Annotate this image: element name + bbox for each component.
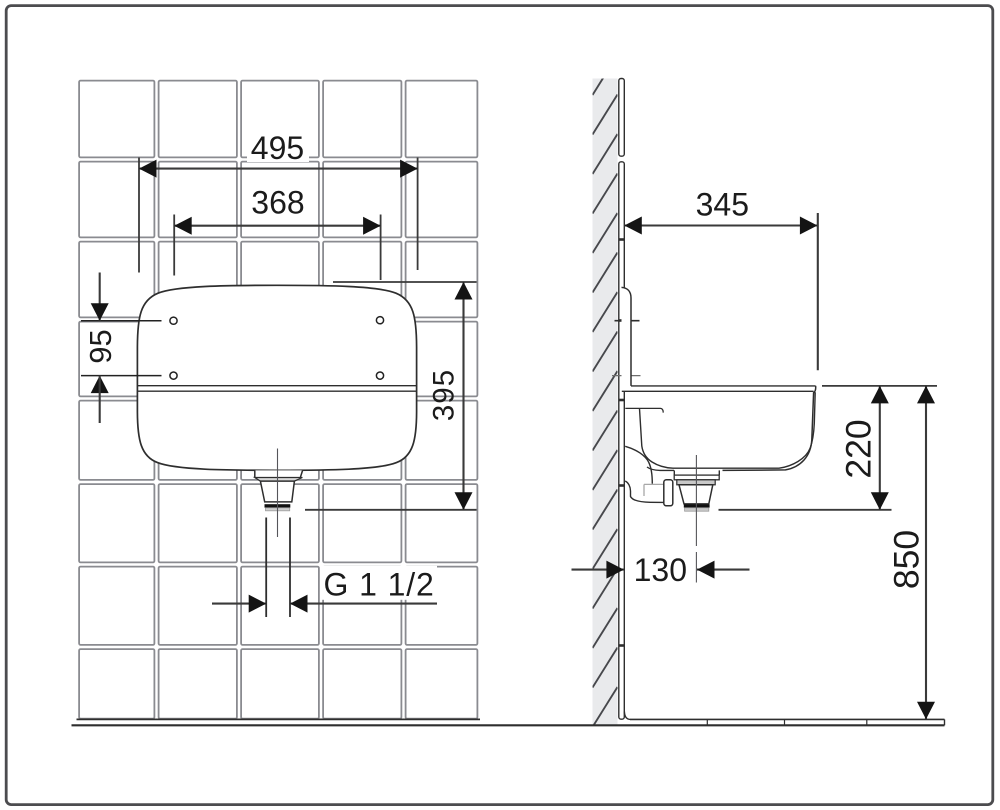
svg-text:495: 495: [251, 130, 304, 166]
svg-text:130: 130: [634, 552, 687, 588]
svg-text:850: 850: [887, 530, 927, 589]
svg-text:345: 345: [696, 186, 749, 222]
svg-text:368: 368: [251, 185, 304, 221]
svg-text:95: 95: [83, 329, 118, 363]
svg-text:395: 395: [428, 369, 461, 421]
svg-text:220: 220: [839, 419, 879, 478]
svg-text:G 1 1/2: G 1 1/2: [324, 567, 435, 603]
